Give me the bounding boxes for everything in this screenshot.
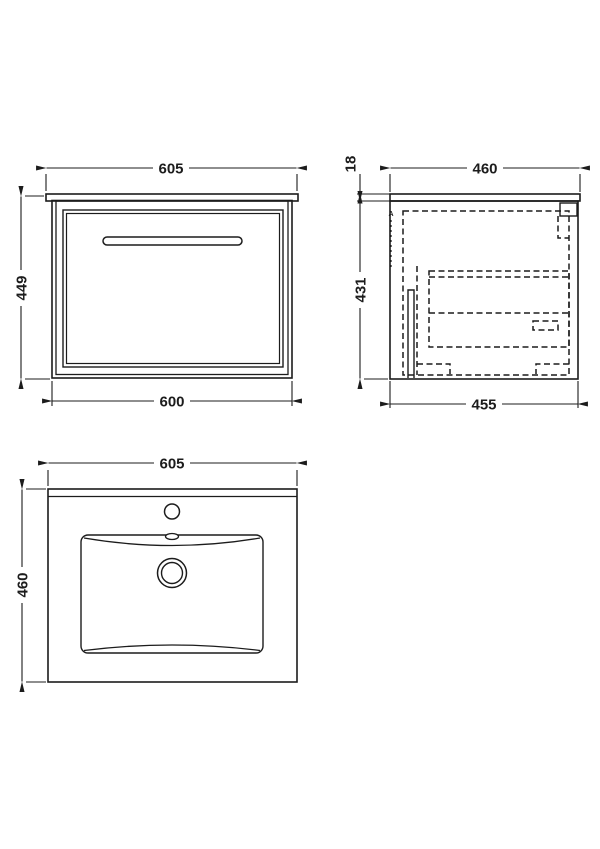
dimension-label-group: 449 [13, 270, 31, 306]
dimension-label-group: 605 [153, 160, 189, 178]
dimension-label-group: 600 [154, 393, 190, 411]
plan-width-label: 605 [159, 456, 184, 473]
plan-overflow-slot [166, 534, 179, 540]
dimension-label-group: 460 [467, 160, 503, 178]
drawing-background [0, 0, 600, 849]
dimension-label-group: 605 [154, 455, 190, 473]
front-width-bottom-label: 600 [159, 394, 184, 411]
drawing-canvas: 605 449 600 [0, 0, 600, 849]
front-width-top-label: 605 [158, 161, 183, 178]
front-height-label: 449 [14, 275, 31, 300]
plan-depth-label: 460 [15, 572, 32, 597]
side-depth-bottom-label: 455 [471, 397, 496, 414]
dimension-label-group: 460 [14, 567, 32, 603]
side-depth-top-label: 460 [472, 161, 497, 178]
side-counter-thickness-label: 18 [343, 156, 360, 173]
dimension-label-group: 18 [343, 156, 360, 173]
section-marker-label: A [388, 211, 393, 218]
dimension-label-group: 431 [352, 272, 370, 308]
dimension-label-group: 455 [466, 396, 502, 414]
technical-drawing-page: 605 449 600 [0, 0, 600, 849]
side-height-label: 431 [353, 277, 370, 302]
